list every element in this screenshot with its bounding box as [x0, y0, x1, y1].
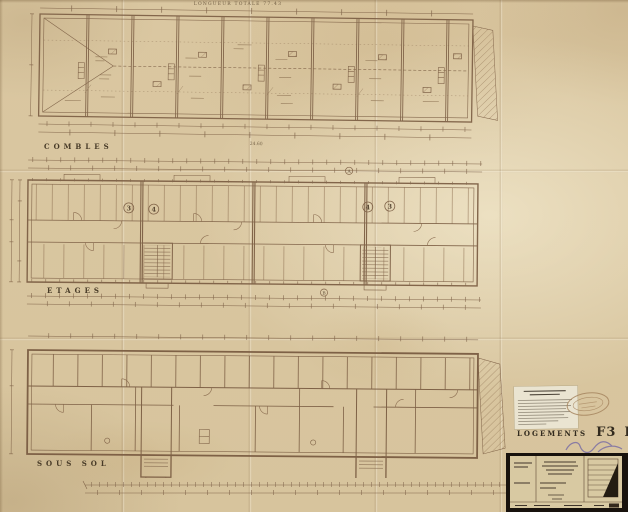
- section-marker-bottom: B: [320, 289, 327, 297]
- basement-partitions: [91, 387, 416, 458]
- plan-combles: 24.60: [26, 4, 508, 149]
- sheet-edge: [0, 0, 628, 3]
- svg-text:4: 4: [151, 206, 156, 214]
- plan-sous-sol: [4, 328, 526, 478]
- sheet-edge: [0, 0, 3, 512]
- oval-stamp-icon: [560, 388, 620, 422]
- stair-entry: [141, 455, 171, 478]
- ground-hatch-right: [477, 358, 506, 454]
- title-block-cartouche: [506, 453, 628, 512]
- micro-annotations: [65, 42, 440, 105]
- roof-lines: [43, 18, 469, 118]
- svg-text:3: 3: [387, 203, 392, 211]
- chimney-stacks: [108, 49, 462, 93]
- svg-text:3: 3: [126, 204, 131, 212]
- plan-label-etages: ETAGES: [47, 286, 103, 295]
- svg-text:4: 4: [365, 203, 370, 211]
- fixtures: [105, 429, 316, 445]
- overall-dimension-chain: 77.43: [75, 476, 555, 506]
- party-walls: [86, 15, 449, 122]
- scanned-architectural-plan-sheet: LONGUEUR TOTALE 77.43: [0, 0, 628, 512]
- plan-label-sous-sol: SOUS SOL: [37, 459, 110, 468]
- stair-entry: [356, 457, 386, 478]
- roof-hatch-right: [472, 26, 499, 120]
